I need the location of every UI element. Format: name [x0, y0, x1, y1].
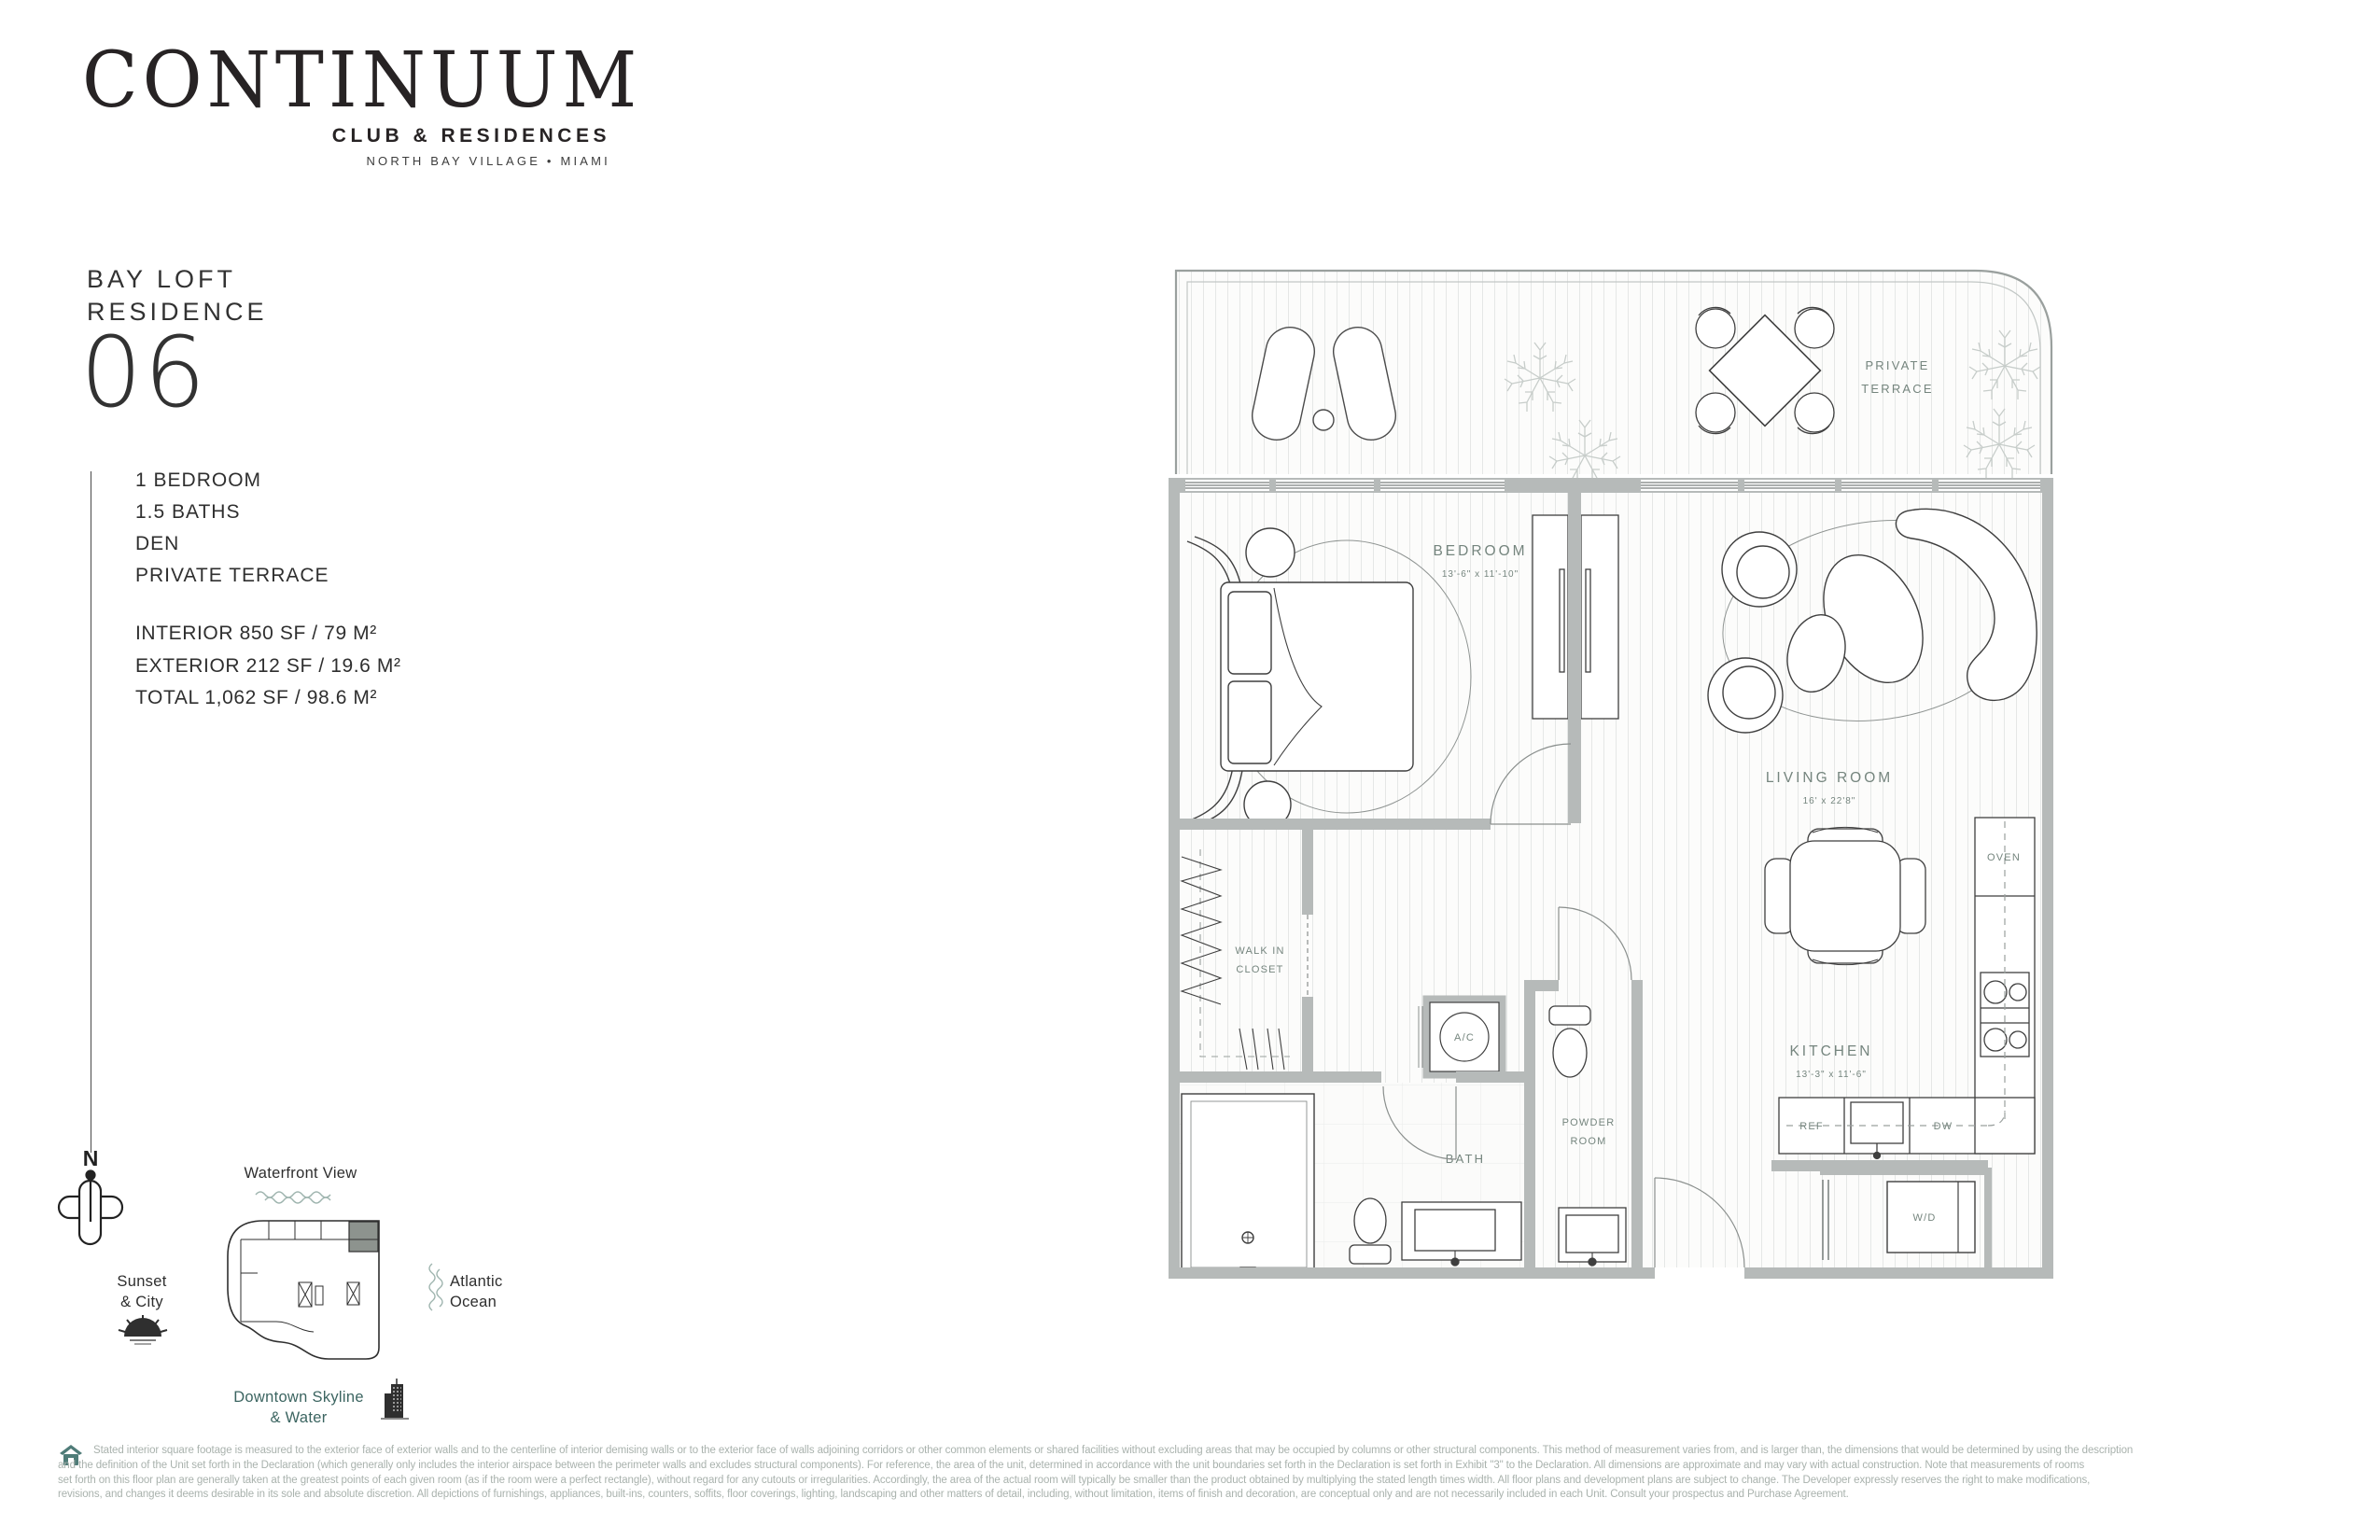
bath-vanity [1402, 1202, 1521, 1266]
kitchen-label: KITCHEN [1789, 1043, 1872, 1059]
terrace-label-line1: PRIVATE [1865, 358, 1929, 372]
disclaimer-line: set forth on this floor plan are general… [58, 1474, 2335, 1489]
disclaimer: Stated interior square footage is measur… [58, 1444, 2335, 1503]
feature-item: 1.5 BATHS [135, 497, 329, 528]
brochure-page: CONTINUUM CLUB & RESIDENCES NORTH BAY VI… [0, 0, 2380, 1540]
brand-block: CONTINUUM CLUB & RESIDENCES NORTH BAY VI… [82, 39, 610, 168]
feature-item: 1 BEDROOM [135, 465, 329, 497]
keyplan-unit-highlight [349, 1222, 378, 1252]
terrace-label-line2: TERRACE [1861, 382, 1934, 396]
powder-label-line1: POWDER [1562, 1117, 1616, 1128]
skyline-icon [381, 1379, 414, 1421]
wd-label: W/D [1913, 1212, 1937, 1224]
powder-toilet [1549, 1006, 1590, 1077]
waterfront-waves-icon [254, 1187, 347, 1206]
kitchen-dims: 13'-3" x 11'-6" [1796, 1070, 1867, 1080]
compass-rose [59, 1171, 122, 1245]
walkin-label-line1: WALK IN [1235, 945, 1284, 957]
waterfront-view-label: Waterfront View [207, 1163, 394, 1183]
ref-label: REF [1799, 1121, 1824, 1132]
sunset-icon [117, 1314, 169, 1346]
shower [1182, 1094, 1314, 1275]
powder-label-line2: ROOM [1570, 1136, 1606, 1147]
residence-number: 06 [80, 315, 207, 429]
living-label: LIVING ROOM [1766, 770, 1893, 786]
ac-label: A/C [1454, 1032, 1475, 1043]
vertical-rule [91, 471, 91, 1153]
walkin-label-line2: CLOSET [1236, 964, 1283, 975]
bedroom-label: BEDROOM [1433, 543, 1527, 559]
compass: N [49, 1143, 133, 1255]
disclaimer-line: and the definition of the Unit set forth… [58, 1459, 2335, 1474]
bedroom-dims: 13'-6" x 11'-10" [1442, 569, 1519, 580]
feature-item: PRIVATE TERRACE [135, 560, 329, 592]
ocean-waves-icon [425, 1262, 447, 1323]
residence-type-line1: BAY LOFT [87, 263, 268, 296]
oven-label: OVEN [1987, 852, 2021, 863]
dw-label: DW [1934, 1121, 1953, 1132]
powder-vanity [1559, 1208, 1626, 1266]
downtown-skyline-label: Downtown Skyline & Water [205, 1387, 392, 1428]
disclaimer-line: Stated interior square footage is measur… [58, 1444, 2335, 1459]
floor-plan: PRIVATE TERRACE BEDROOM 13'-6" x 11'-10" [1167, 261, 2072, 1297]
area-list: INTERIOR 850 SF / 79 M² EXTERIOR 212 SF … [135, 618, 401, 715]
area-item: EXTERIOR 212 SF / 19.6 M² [135, 651, 401, 683]
feature-item: DEN [135, 528, 329, 560]
compass-north-label: N [83, 1146, 99, 1170]
disclaimer-line: revisions, and changes it deems desirabl… [58, 1488, 2335, 1503]
feature-list: 1 BEDROOM 1.5 BATHS DEN PRIVATE TERRACE [135, 465, 329, 592]
atlantic-ocean-label: Atlantic Ocean [450, 1271, 562, 1312]
brand-logo: CONTINUUM [82, 39, 610, 124]
brand-tagline: CLUB & RESIDENCES [82, 125, 610, 147]
sunset-city-label: Sunset & City [86, 1271, 198, 1312]
area-item: TOTAL 1,062 SF / 98.6 M² [135, 682, 401, 715]
keyplan-building [217, 1210, 394, 1378]
area-item: INTERIOR 850 SF / 79 M² [135, 618, 401, 651]
brand-location: NORTH BAY VILLAGE • MIAMI [82, 154, 610, 168]
living-dims: 16' x 22'8" [1803, 796, 1856, 806]
terrace-dining-set [1696, 307, 1834, 433]
